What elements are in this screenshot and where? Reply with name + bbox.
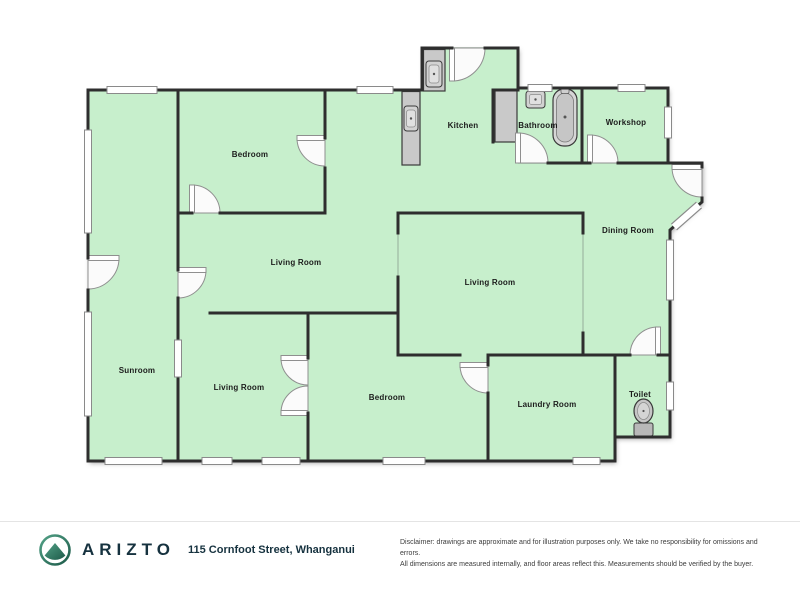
window <box>618 85 645 92</box>
room-label-toilet: Toilet <box>629 390 651 399</box>
window <box>105 458 162 465</box>
brand-lockup: ARIZTO <box>38 533 175 567</box>
window <box>383 458 425 465</box>
bathroom-sink-icon <box>526 91 545 108</box>
room-label-kitchen: Kitchen <box>448 121 479 130</box>
room-label-workshop: Workshop <box>606 118 647 127</box>
brand-name: ARIZTO <box>82 540 175 560</box>
disclaimer-line-2: All dimensions are measured internally, … <box>400 561 753 568</box>
window <box>667 240 674 300</box>
window <box>85 130 92 233</box>
bathtub-icon <box>553 89 577 147</box>
room-label-bedroom-bottom: Bedroom <box>369 393 406 402</box>
window <box>665 107 672 138</box>
toilet-icon <box>634 399 653 436</box>
room-label-living-room-middle: Living Room <box>271 258 322 267</box>
room-label-sunroom: Sunroom <box>119 366 156 375</box>
window <box>573 458 600 465</box>
window <box>528 85 552 92</box>
bathroom-counter-block <box>495 90 517 142</box>
window <box>667 382 674 410</box>
disclaimer-text: Disclaimer: drawings are approximate and… <box>400 538 762 571</box>
footer-bar: ARIZTO 115 Cornfoot Street, Whanganui Di… <box>0 521 800 601</box>
property-address: 115 Cornfoot Street, Whanganui <box>188 544 355 556</box>
window <box>175 340 182 377</box>
disclaimer-line-1: Disclaimer: drawings are approximate and… <box>400 539 758 557</box>
room-label-laundry-room: Laundry Room <box>518 400 577 409</box>
arizto-logo-icon <box>38 533 72 567</box>
window <box>107 87 157 94</box>
kitchen-sink-icon <box>426 61 442 87</box>
room-label-dining-room: Dining Room <box>602 226 654 235</box>
window <box>262 458 300 465</box>
floorplan: Bedroom Kitchen Bathroom Workshop Dining… <box>0 0 800 520</box>
room-label-bedroom-top: Bedroom <box>232 150 269 159</box>
room-label-living-room-bottom: Living Room <box>214 383 265 392</box>
kitchen-counter <box>424 50 446 92</box>
room-label-living-room-inner: Living Room <box>465 278 516 287</box>
room-label-bathroom: Bathroom <box>518 121 557 130</box>
window <box>202 458 232 465</box>
kitchen-sink-2-icon <box>404 106 418 131</box>
window <box>85 312 92 416</box>
kitchen-counter-2 <box>402 92 420 166</box>
window <box>357 87 393 94</box>
